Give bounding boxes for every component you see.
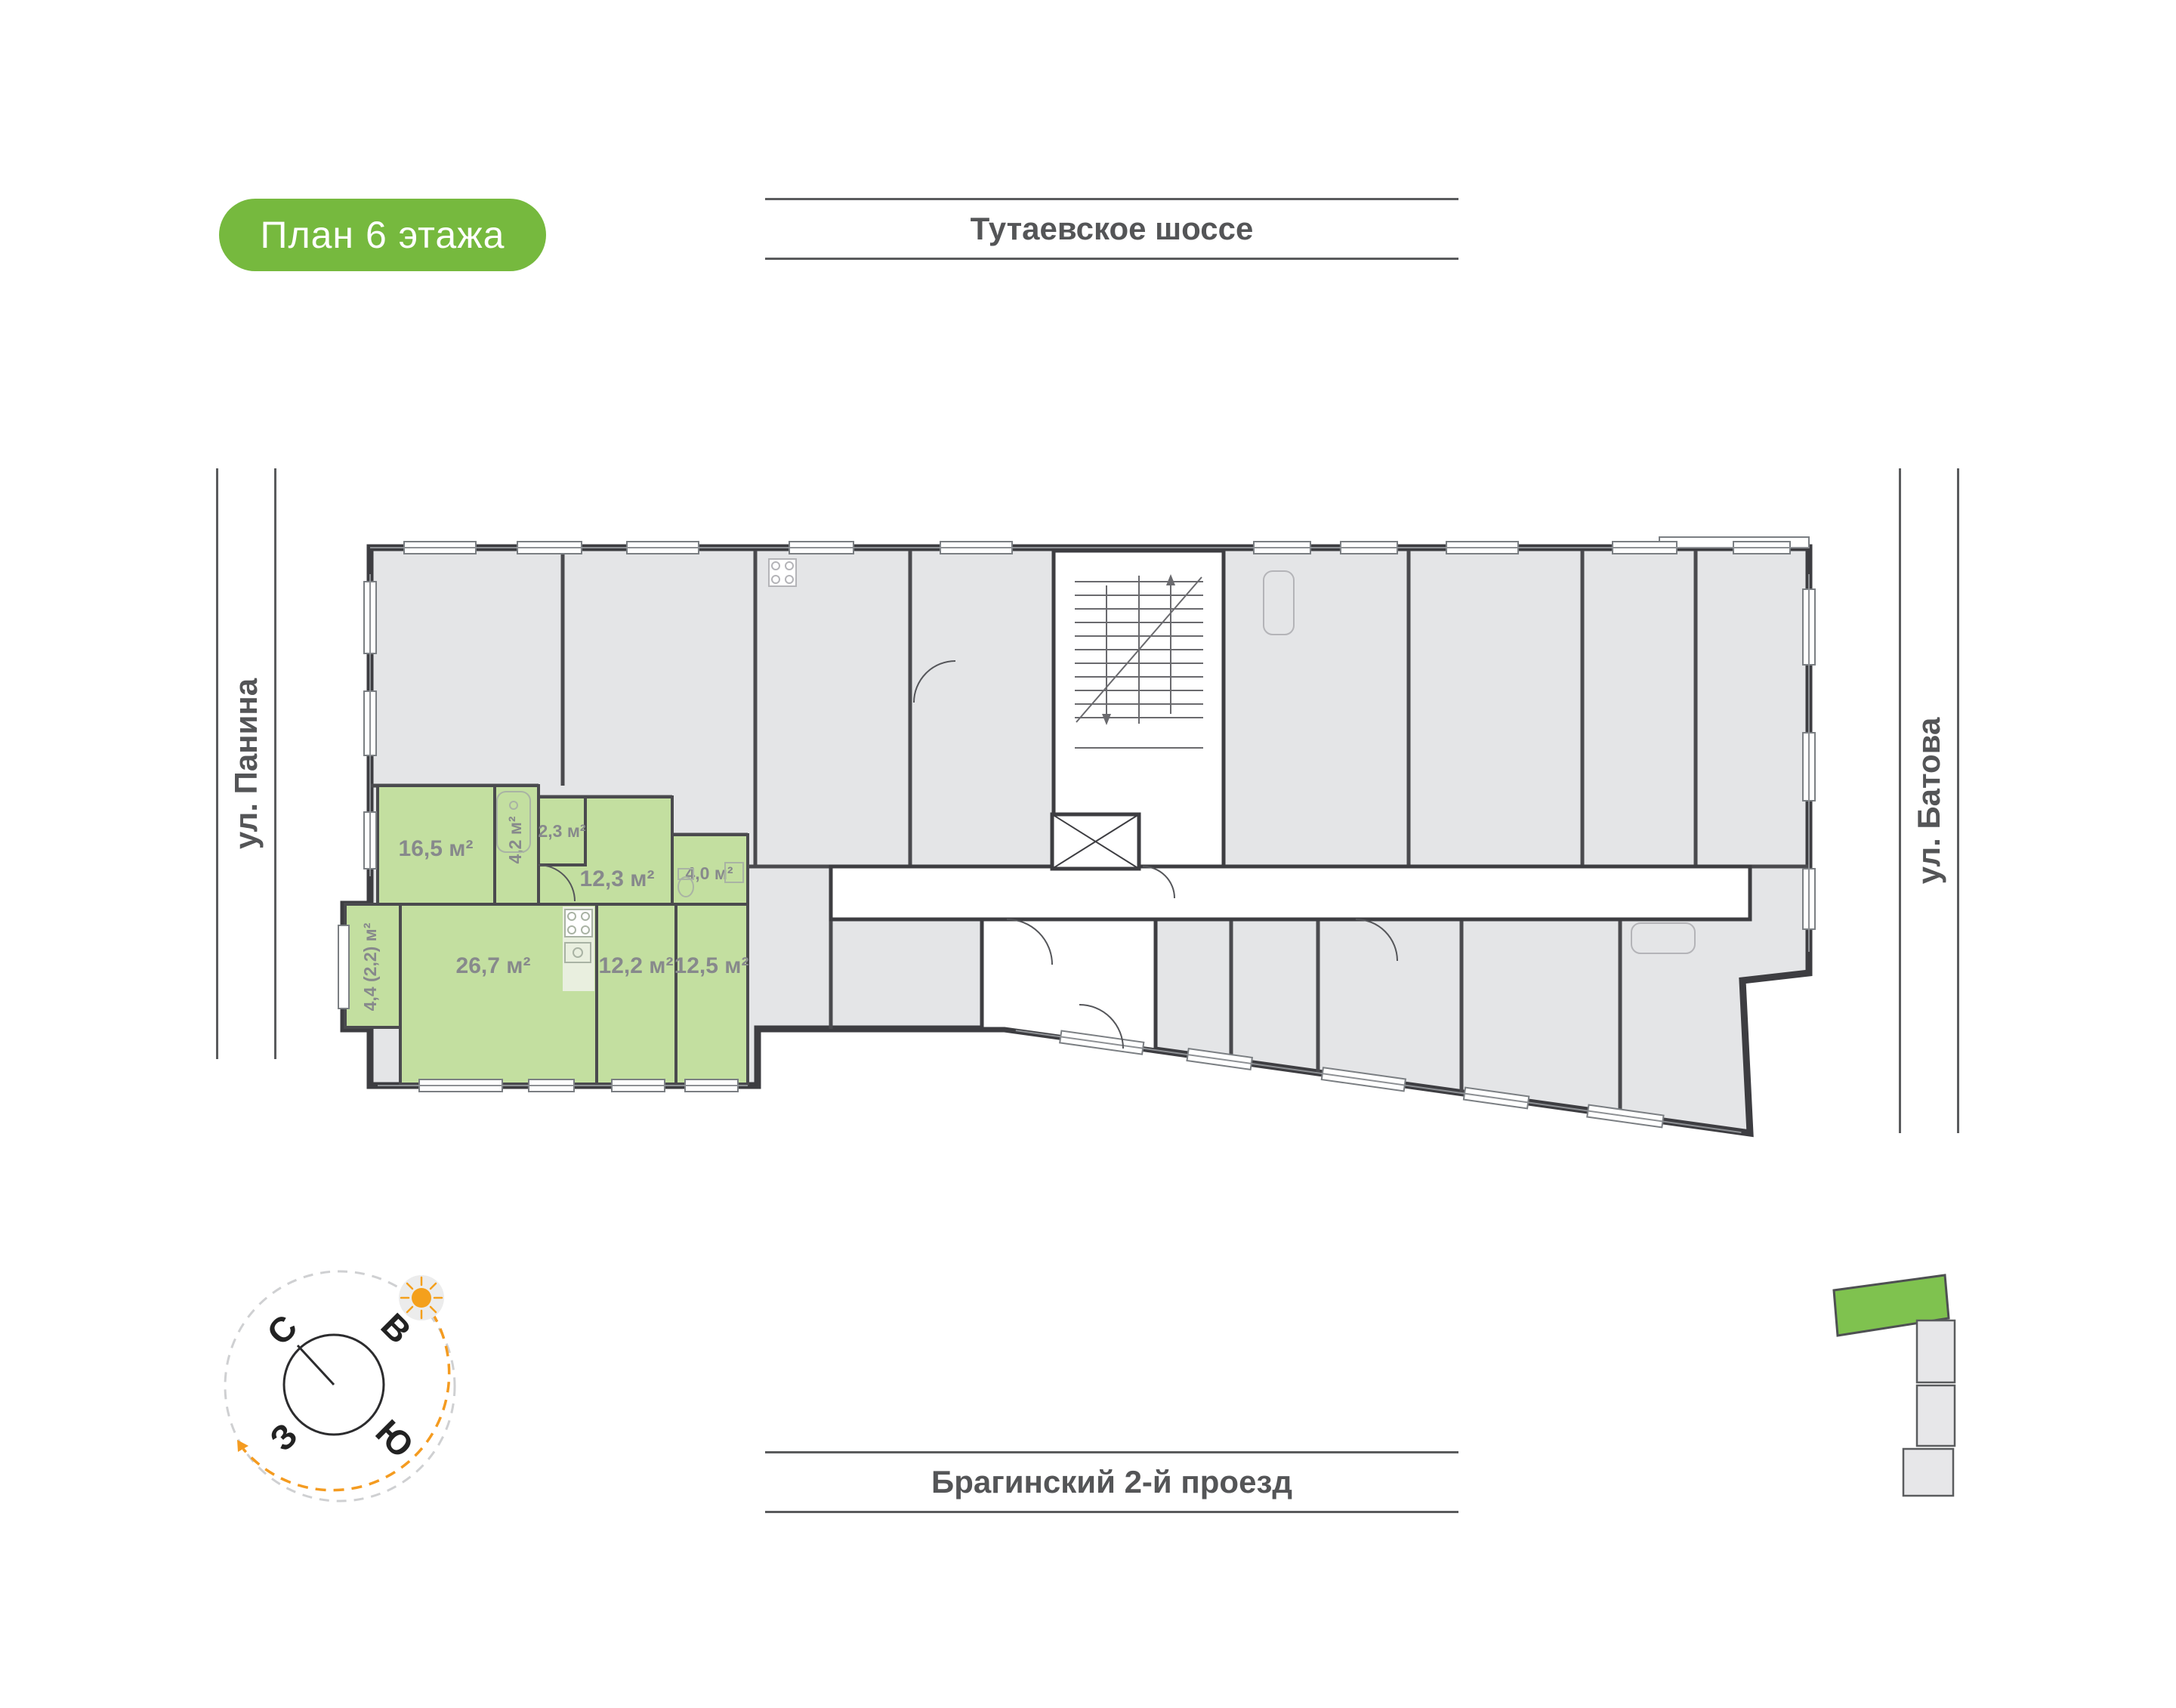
compass-south-label: Ю [369,1412,421,1465]
corridor [831,866,1750,919]
compass-west-label: З [262,1416,305,1459]
room-area-label-4-0: 4,0 м² [685,863,733,883]
room-area-label-12-5: 12,5 м² [674,953,749,978]
site-map [1813,1262,1979,1526]
street-right: ул. Батова [1899,468,1959,1133]
street-left: ул. Панина [216,468,276,1059]
street-bottom-label: Брагинский 2-й проезд [931,1464,1292,1500]
floor-plan-badge: План 6 этажа [219,199,546,271]
entrance-vestibule [982,919,1156,1050]
bedroom-12-2[interactable] [597,904,676,1084]
street-top: Тутаевское шоссе [765,198,1458,260]
room-area-label-26-7: 26,7 м² [456,953,531,978]
page: План 6 этажа Тутаевское шоссе Брагинский… [0,0,2176,1708]
floor-plan: 16,5 м² 4,2 м² 2,3 м² 12,3 м² 4,0 м² 26,… [336,529,1816,1156]
room-area-label-12-2: 12,2 м² [599,953,674,978]
street-left-label: ул. Панина [228,678,264,849]
street-right-label: ул. Батова [1911,718,1947,885]
room-area-label-4-4: 4,4 (2,2) м² [360,922,380,1011]
compass: С В Ю З [204,1250,491,1537]
room-area-label-16-5: 16,5 м² [399,836,474,861]
site-map-other-buildings [1903,1320,1955,1496]
street-bottom: Брагинский 2-й проезд [765,1451,1458,1513]
room-area-label-2-3: 2,3 м² [538,821,585,841]
elevator-shaft [1052,814,1139,869]
room-area-label-12-3: 12,3 м² [580,866,655,891]
room-area-label-4-2: 4,2 м² [505,816,525,863]
bedroom-12-5[interactable] [676,904,748,1084]
street-top-label: Тутаевское шоссе [971,211,1254,247]
floor-plan-badge-label: План 6 этажа [261,213,505,257]
